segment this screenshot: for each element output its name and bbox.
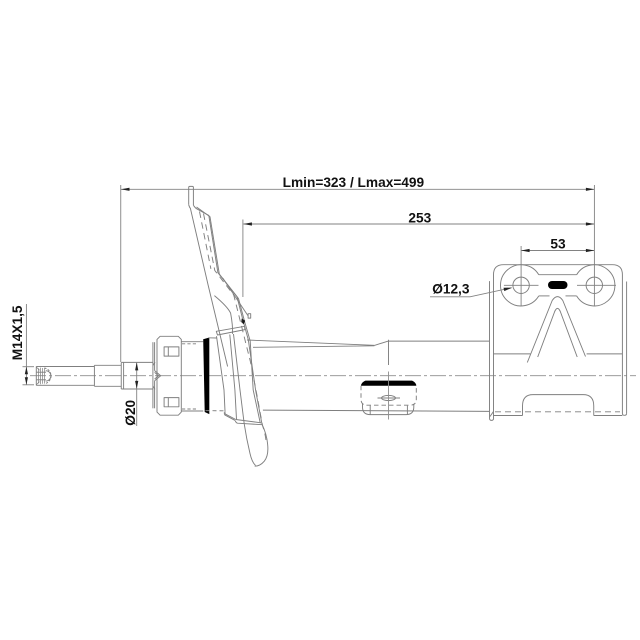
svg-text:Lmin=323 / Lmax=499: Lmin=323 / Lmax=499 (283, 175, 425, 190)
svg-text:253: 253 (408, 210, 431, 225)
svg-text:53: 53 (550, 236, 566, 251)
svg-text:M14X1,5: M14X1,5 (10, 305, 25, 360)
svg-text:Ø20: Ø20 (123, 399, 138, 425)
svg-text:Ø12,3: Ø12,3 (432, 282, 470, 297)
